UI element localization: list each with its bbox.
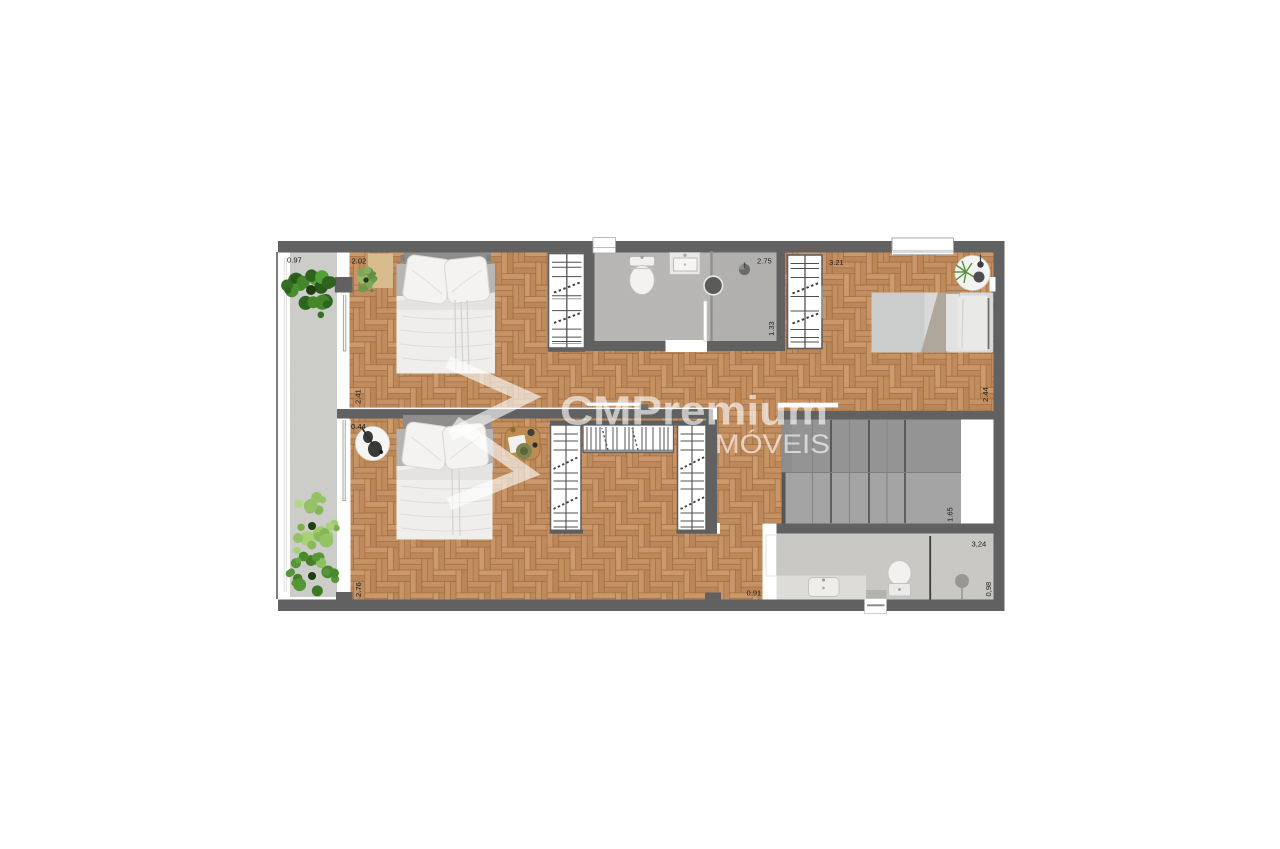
svg-text:0.97: 0.97 xyxy=(287,256,302,265)
svg-text:CMPremium: CMPremium xyxy=(560,388,828,434)
svg-text:3.21: 3.21 xyxy=(829,258,844,267)
svg-text:1.33: 1.33 xyxy=(767,321,776,336)
svg-text:2.02: 2.02 xyxy=(352,257,367,266)
svg-text:MÓVEIS: MÓVEIS xyxy=(715,428,830,459)
svg-text:1.65: 1.65 xyxy=(946,507,955,522)
svg-text:3,24: 3,24 xyxy=(972,540,987,549)
svg-text:2.41: 2.41 xyxy=(354,389,363,404)
svg-text:0,98: 0,98 xyxy=(984,582,993,597)
svg-text:2.75: 2.75 xyxy=(757,257,772,266)
svg-text:0.44: 0.44 xyxy=(351,422,366,431)
svg-text:2.44: 2.44 xyxy=(981,387,990,402)
svg-text:0.91: 0.91 xyxy=(747,589,762,598)
svg-text:2.76: 2.76 xyxy=(354,582,363,597)
